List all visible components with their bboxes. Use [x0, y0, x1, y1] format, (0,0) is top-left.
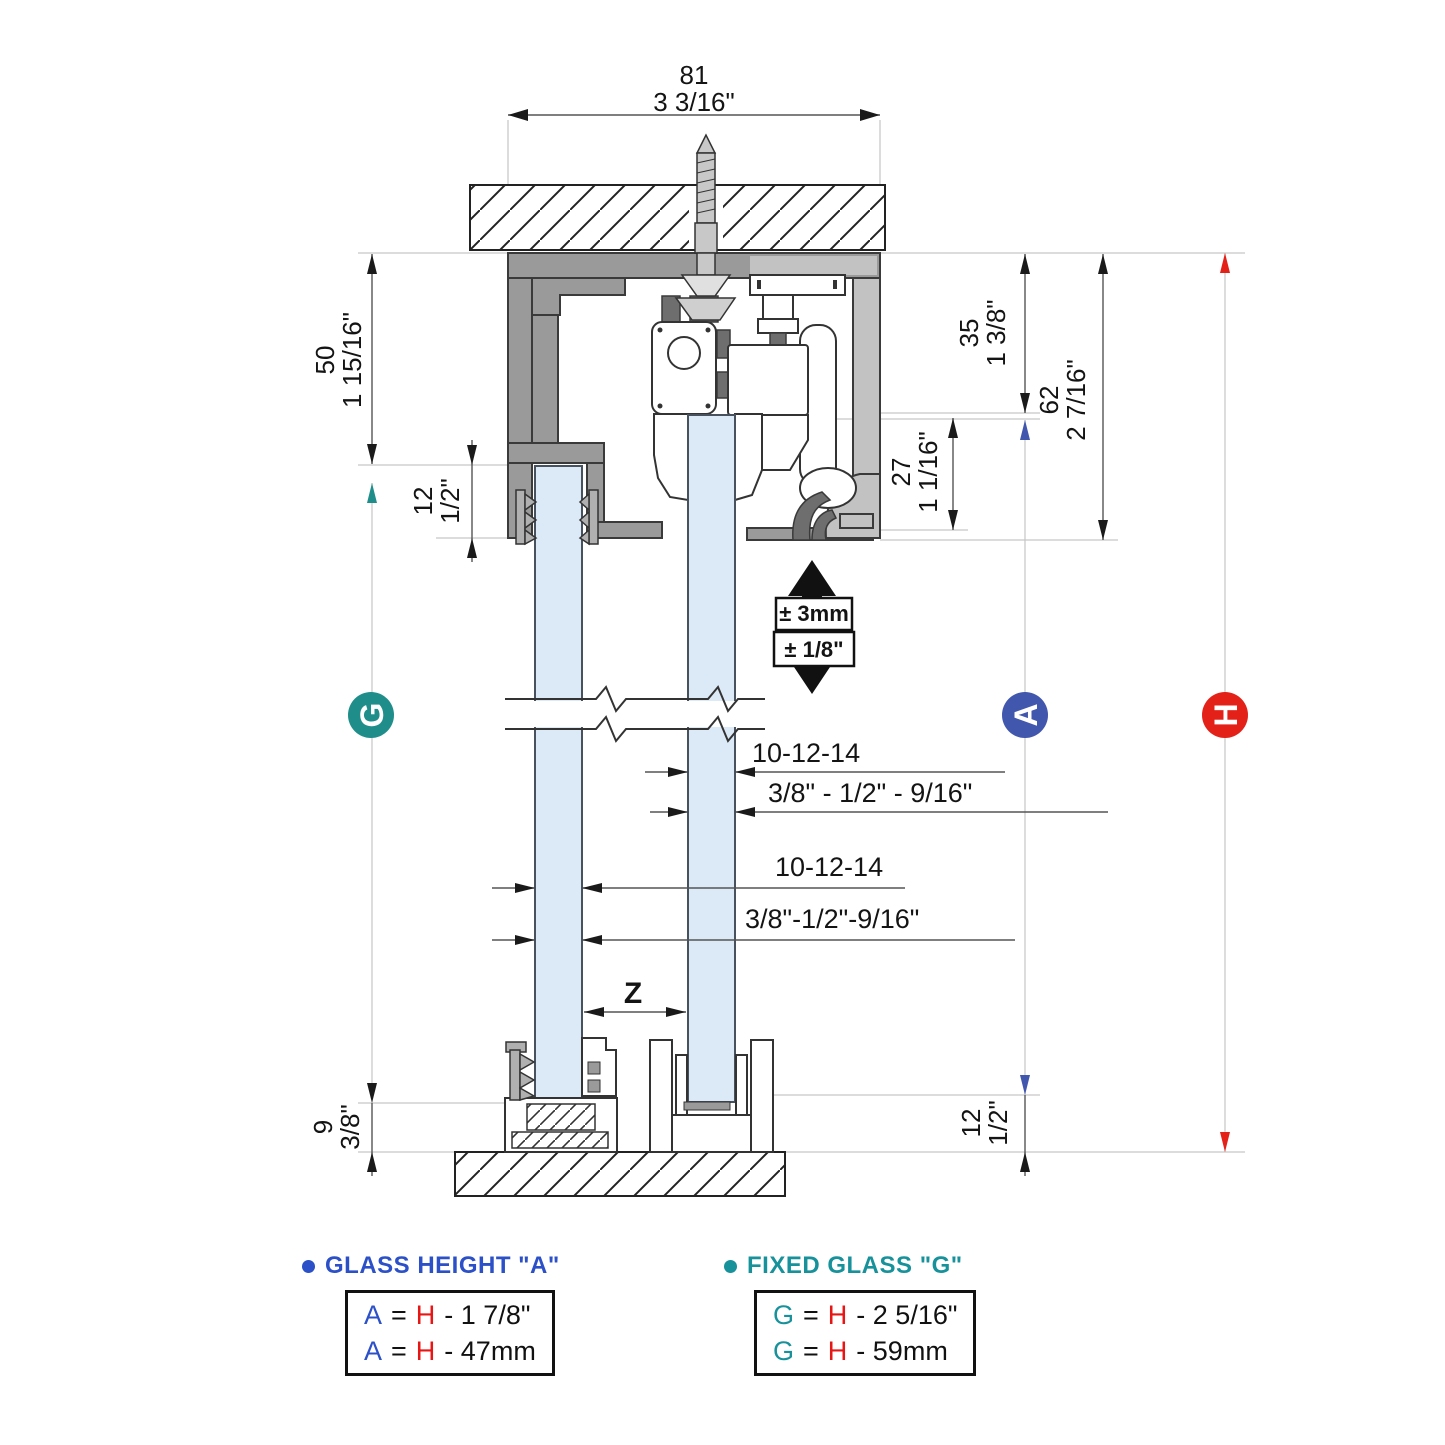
formula-h: H — [416, 1297, 436, 1333]
floor-section — [455, 1152, 785, 1196]
hanger-bracket — [750, 275, 845, 295]
legend-row: G = H - 59mm — [773, 1333, 957, 1369]
marker-circles: G A H — [348, 692, 1248, 738]
dim-track-depth-inch: 2 7/16" — [1061, 359, 1091, 441]
formula-equals: = — [803, 1297, 819, 1333]
dim-fixed-inset-bottom-inch: 3/8" — [335, 1104, 365, 1149]
dim-fixed-inset-bottom-mm: 9 — [308, 1120, 338, 1134]
h-top-arrow — [1220, 253, 1230, 273]
formula-symbol: A — [364, 1297, 382, 1333]
dim-fixed-inset-top-mm: 12 — [408, 487, 438, 516]
dim-top-height-mm: 50 — [310, 346, 340, 375]
a-bottom-arrow — [1020, 1075, 1030, 1095]
glass-clamp-left — [654, 414, 688, 500]
formula-symbol: A — [364, 1333, 382, 1369]
formula-expr: - 47mm — [444, 1333, 536, 1369]
ceiling-section — [470, 185, 885, 250]
adjustment-inch: ± 1/8" — [784, 637, 843, 662]
legend-row: A = H - 1 7/8" — [364, 1297, 536, 1333]
dim-track-width-mm: 81 — [680, 60, 709, 90]
dim-track-depth-mm: 62 — [1034, 386, 1064, 415]
door-section-diagram: 81 3 3/16" 50 1 15/16" 12 1/2" 35 1 3/8"… — [0, 0, 1445, 1445]
fixed-glass-thickness-inch: 3/8"-1/2"-9/16" — [745, 904, 919, 934]
formula-h: H — [416, 1333, 436, 1369]
formula-h: H — [828, 1297, 848, 1333]
legend-fixed-glass-box: G = H - 2 5/16" G = H - 59mm — [754, 1290, 976, 1376]
g-top-arrow — [367, 483, 377, 503]
dim-top-height-inch: 1 15/16" — [337, 312, 367, 408]
glass-clamp-right — [735, 414, 762, 500]
formula-expr: - 1 7/8" — [444, 1297, 530, 1333]
screw-washer — [676, 298, 735, 320]
bullet-icon — [302, 1260, 315, 1273]
legend-row: A = H - 47mm — [364, 1333, 536, 1369]
legend-glass-height-box: A = H - 1 7/8" A = H - 47mm — [345, 1290, 555, 1376]
formula-expr: - 2 5/16" — [856, 1297, 957, 1333]
diagram-stage: 81 3 3/16" 50 1 15/16" 12 1/2" 35 1 3/8"… — [0, 0, 1445, 1445]
roller-body — [728, 345, 808, 415]
marker-a-label: A — [1008, 703, 1044, 726]
dim-hanger-height-inch: 1 3/8" — [981, 299, 1011, 366]
marker-g-label: G — [354, 703, 390, 728]
formula-equals: = — [391, 1333, 407, 1369]
legend-fixed-glass-title: FIXED GLASS "G" — [724, 1252, 963, 1280]
adjustment-indicator: ± 3mm ± 1/8" — [774, 560, 854, 694]
formula-expr: - 59mm — [856, 1333, 948, 1369]
fixed-glass-thickness-mm: 10-12-14 — [775, 852, 883, 882]
roller-carriage — [652, 275, 856, 540]
dim-fixed-inset-top-inch: 1/2" — [435, 478, 465, 523]
sliding-glass-thickness-inch: 3/8" - 1/2" - 9/16" — [768, 778, 972, 808]
dim-door-floor-gap-mm: 12 — [956, 1109, 986, 1138]
legend-fixed-glass-title-text: FIXED GLASS "G" — [747, 1252, 963, 1280]
dim-hanger-height-mm: 35 — [954, 319, 984, 348]
screw-head — [682, 275, 730, 296]
legend-row: G = H - 2 5/16" — [773, 1297, 957, 1333]
dim-door-floor-gap-inch: 1/2" — [983, 1100, 1013, 1145]
screw-tip — [697, 135, 715, 153]
marker-h-label: H — [1208, 703, 1244, 726]
formula-symbol: G — [773, 1297, 794, 1333]
formula-equals: = — [803, 1333, 819, 1369]
fixed-glass-panel — [535, 466, 582, 1104]
dim-roller-clearance-inch: 1 1/16" — [913, 431, 943, 513]
legend-glass-height-title: GLASS HEIGHT "A" — [302, 1252, 560, 1280]
a-top-arrow — [1020, 420, 1030, 440]
bullet-icon — [724, 1260, 737, 1273]
dim-gap-z: Z — [624, 977, 642, 1010]
formula-symbol: G — [773, 1333, 794, 1369]
adjustment-mm: ± 3mm — [779, 601, 849, 626]
sliding-glass-panel — [688, 415, 735, 1102]
dim-roller-clearance-mm: 27 — [886, 458, 916, 487]
formula-equals: = — [391, 1297, 407, 1333]
sliding-glass-thickness-mm: 10-12-14 — [752, 738, 860, 768]
h-bottom-arrow — [1220, 1132, 1230, 1152]
legend-glass-height-title-text: GLASS HEIGHT "A" — [325, 1252, 560, 1280]
dim-track-width-inch: 3 3/16" — [653, 87, 735, 117]
formula-h: H — [828, 1333, 848, 1369]
adjustment-hole — [668, 337, 700, 369]
